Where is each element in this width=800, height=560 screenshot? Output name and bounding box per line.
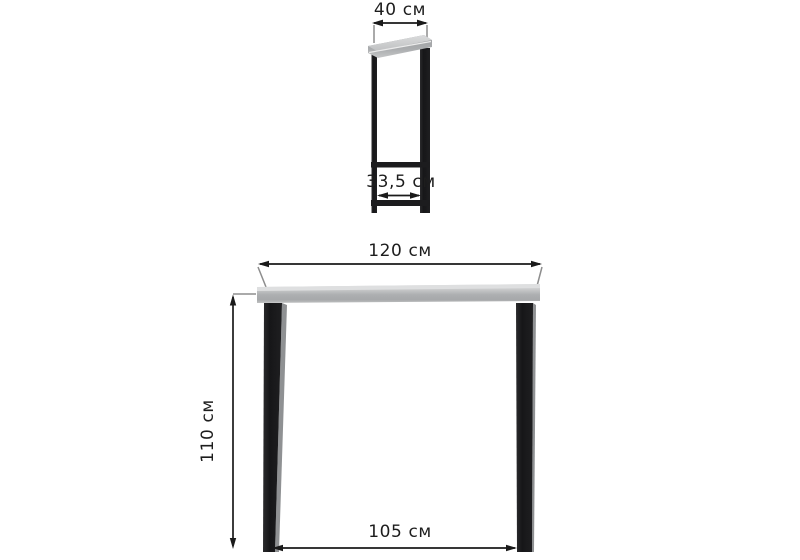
- front-view: [230, 261, 542, 552]
- front-right-leg: [516, 303, 533, 552]
- side-upper-stretcher: [371, 162, 430, 168]
- leg-span-arrowhead-right: [506, 545, 517, 551]
- dimension-drawing-canvas: [0, 0, 800, 560]
- width-arrowhead-right: [531, 261, 542, 267]
- dimension-label-base-span: 33,5 см: [340, 173, 462, 192]
- dimension-label-top-depth: 40 см: [340, 1, 460, 20]
- dimension-label-leg-span: 105 см: [340, 523, 460, 542]
- dimension-label-height: 110 см: [199, 391, 219, 471]
- base-span-arrowhead-right: [410, 192, 421, 198]
- height-arrowhead-top: [230, 295, 236, 306]
- side-lower-stretcher: [371, 200, 430, 206]
- width-arrowhead-left: [258, 261, 269, 267]
- front-extension-line-right: [537, 267, 542, 286]
- front-extension-line-left: [258, 267, 266, 287]
- dimension-label-top-width: 120 см: [340, 242, 460, 261]
- height-arrowhead-bottom: [230, 538, 236, 549]
- base-span-arrowhead-left: [377, 192, 388, 198]
- product-dimension-diagram: 40 см 33,5 см 120 см 110 см 105 см: [0, 0, 800, 560]
